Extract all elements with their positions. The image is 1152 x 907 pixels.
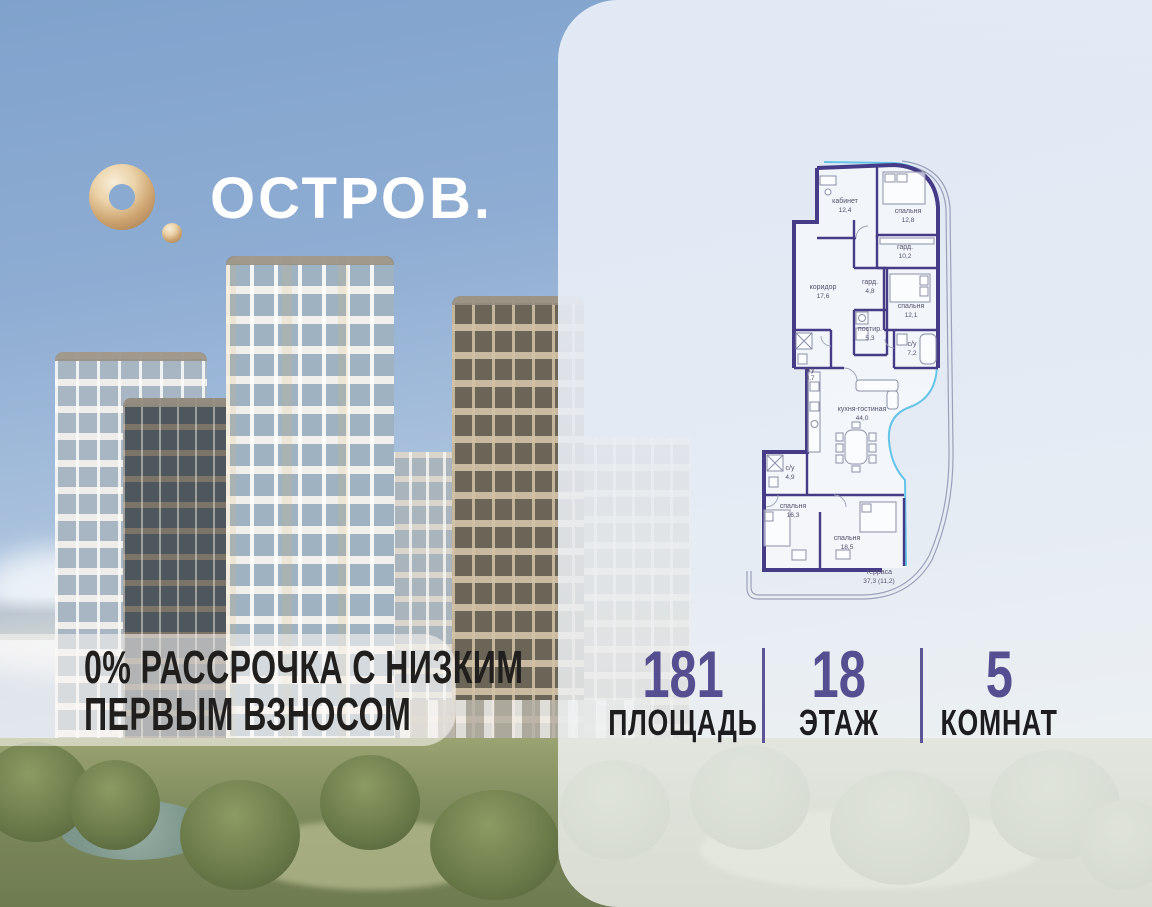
room-label: с/у (806, 367, 815, 374)
promo-line-2: ПЕРВЫМ ВЗНОСОМ (84, 691, 411, 738)
svg-text:терраса37,3 (11,2): терраса37,3 (11,2) (863, 569, 894, 585)
info-panel: кабинет12,4 спальня12,8 гард.10,2 коридо… (558, 0, 1152, 907)
promo-line-1: 0% РАССРОЧКА С НИЗКИМ (84, 644, 523, 691)
roof (226, 256, 394, 265)
room-label: терраса (866, 569, 892, 576)
room-label: кухня-гостиная (838, 406, 887, 413)
room-label: спальня (834, 535, 861, 542)
tree (320, 755, 420, 850)
tree (70, 760, 160, 850)
ad-canvas: кабинет12,4 спальня12,8 гард.10,2 коридо… (0, 0, 1152, 907)
brand-wordmark: ОСТРОВ. (210, 169, 493, 229)
roof (55, 352, 207, 361)
stat-rooms-value: 5 (879, 643, 1119, 705)
svg-text:с/у3,7: с/у3,7 (805, 367, 815, 382)
room-label: с/у (908, 341, 917, 348)
roof (123, 398, 233, 407)
promo-banner: 0% РАССРОЧКА С НИЗКИМ ПЕРВЫМ ВЗНОСОМ (0, 634, 456, 746)
stat-rooms-label: КОМНАТ (879, 707, 1119, 739)
brand-logo: ОСТРОВ. (88, 163, 188, 245)
promo-text: 0% РАССРОЧКА С НИЗКИМ ПЕРВЫМ ВЗНОСОМ (84, 644, 712, 738)
room-label: кабинет (832, 197, 859, 205)
room-label: спальня (780, 503, 807, 510)
torus-logo-icon (88, 163, 188, 245)
room-label: гард. (862, 279, 878, 286)
tree (430, 790, 560, 900)
stat-rooms: 5 КОМНАТ (879, 643, 1119, 739)
floorplan: кабинет12,4 спальня12,8 гард.10,2 коридо… (744, 150, 959, 625)
tree (180, 780, 300, 890)
room-label: коридор (810, 284, 837, 291)
room-label: спальня (895, 208, 922, 215)
room-label: гард. (897, 244, 913, 251)
room-label: с/у (786, 465, 795, 472)
room-label: постир. (858, 326, 882, 333)
room-label: спальня (898, 303, 925, 310)
